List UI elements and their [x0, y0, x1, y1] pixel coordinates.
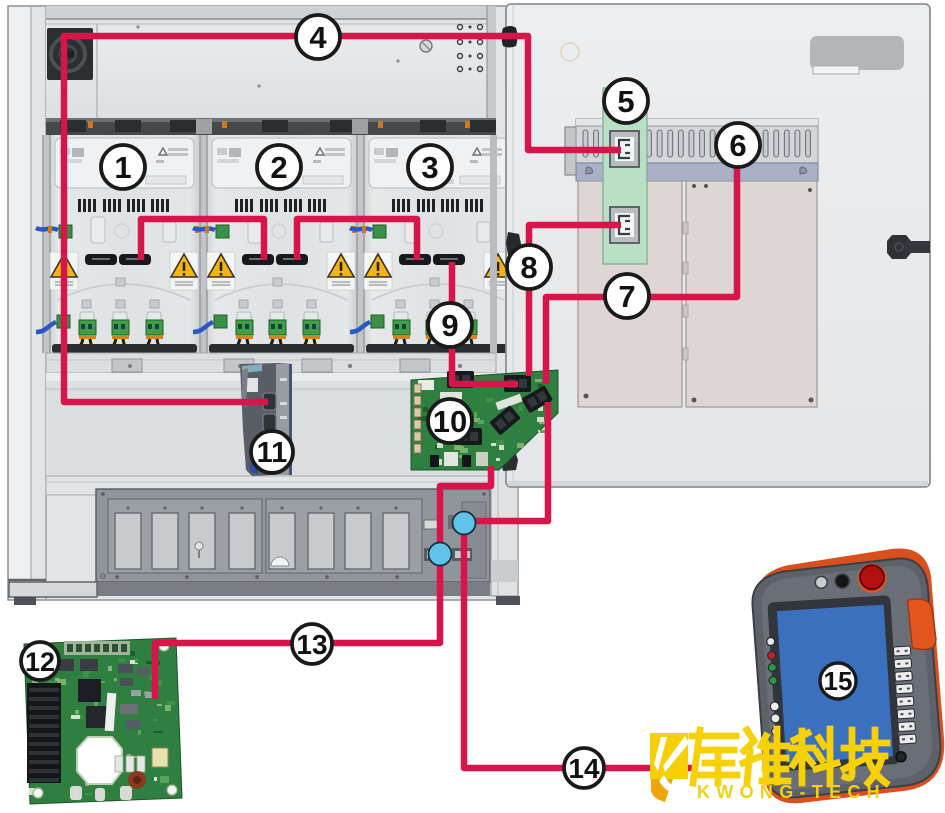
svg-text:3: 3: [421, 150, 438, 185]
svg-text:13: 13: [296, 629, 327, 660]
svg-text:10: 10: [433, 404, 467, 439]
svg-text:6: 6: [729, 128, 746, 163]
svg-text:8: 8: [520, 250, 537, 285]
svg-text:12: 12: [25, 647, 55, 677]
svg-text:KWONG-TECH: KWONG-TECH: [697, 782, 886, 802]
svg-text:9: 9: [441, 308, 458, 343]
svg-text:11: 11: [257, 437, 288, 469]
svg-text:2: 2: [270, 150, 287, 185]
svg-text:1: 1: [114, 150, 131, 185]
svg-text:7: 7: [618, 279, 635, 314]
svg-text:5: 5: [617, 84, 634, 119]
svg-text:15: 15: [824, 666, 853, 696]
svg-text:4: 4: [309, 20, 327, 55]
svg-text:14: 14: [568, 753, 600, 784]
